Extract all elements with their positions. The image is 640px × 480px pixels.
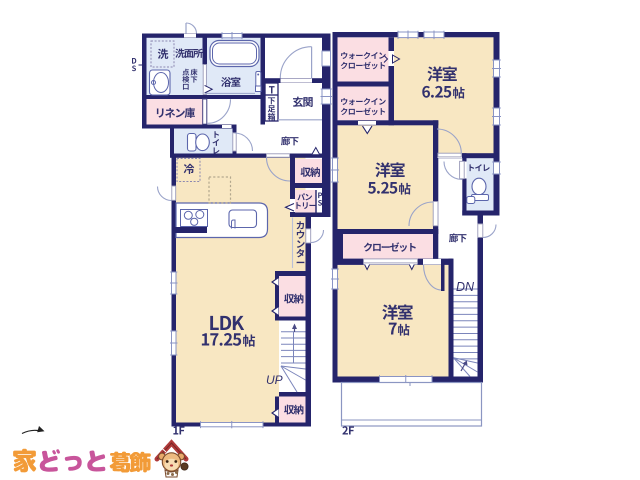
svg-text:DN: DN	[456, 280, 475, 294]
svg-text:UP: UP	[266, 373, 283, 387]
